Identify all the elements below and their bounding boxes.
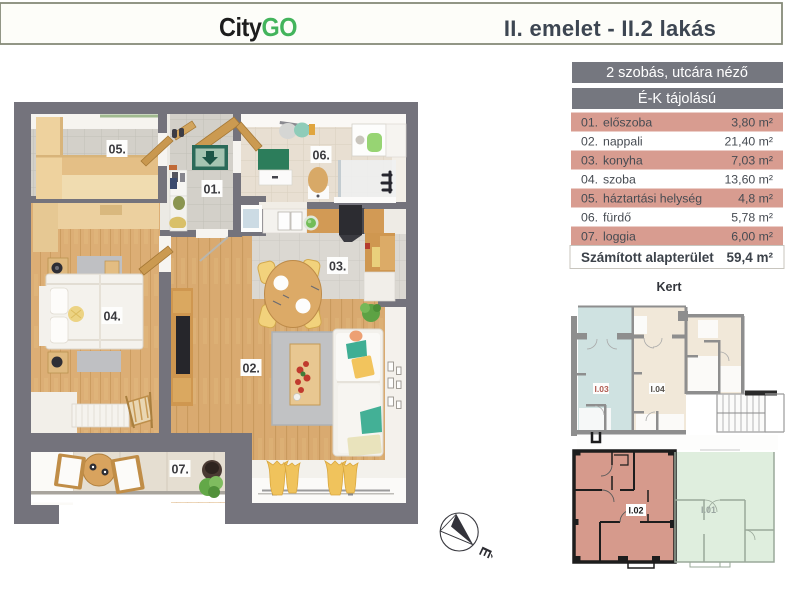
svg-text:04.: 04. <box>581 173 598 187</box>
svg-text:01.: 01. <box>204 183 221 197</box>
svg-text:03.: 03. <box>329 260 346 274</box>
svg-text:loggia: loggia <box>603 230 636 244</box>
svg-text:konyha: konyha <box>603 154 643 168</box>
svg-text:07.: 07. <box>172 463 189 477</box>
svg-text:21,40 m²: 21,40 m² <box>724 135 773 149</box>
svg-text:01.: 01. <box>581 116 598 130</box>
svg-text:Számított alapterület: Számított alapterület <box>581 250 714 265</box>
svg-text:I.04: I.04 <box>651 384 665 394</box>
svg-text:2 szobás, utcára néző: 2 szobás, utcára néző <box>606 65 748 81</box>
svg-text:02.: 02. <box>581 135 598 149</box>
svg-text:I.02: I.02 <box>629 506 644 516</box>
svg-text:05.: 05. <box>109 143 126 157</box>
svg-text:nappali: nappali <box>603 135 643 149</box>
svg-text:I.03: I.03 <box>595 384 609 394</box>
svg-text:előszoba: előszoba <box>603 116 652 130</box>
svg-text:04.: 04. <box>104 310 121 324</box>
svg-text:I.01: I.01 <box>701 505 716 515</box>
svg-text:CityGO: CityGO <box>219 12 297 42</box>
svg-text:02.: 02. <box>243 362 260 376</box>
svg-text:03.: 03. <box>581 154 598 168</box>
svg-text:fürdő: fürdő <box>603 211 631 225</box>
svg-text:szoba: szoba <box>603 173 636 187</box>
svg-text:13,60 m²: 13,60 m² <box>724 173 773 187</box>
svg-text:Kert: Kert <box>656 280 682 294</box>
svg-text:59,4 m²: 59,4 m² <box>726 250 773 265</box>
svg-text:06.: 06. <box>313 149 330 163</box>
svg-text:5,78 m²: 5,78 m² <box>731 211 773 225</box>
svg-text:háztartási helység: háztartási helység <box>603 192 702 206</box>
svg-text:07.: 07. <box>581 230 598 244</box>
svg-text:05.: 05. <box>581 192 598 206</box>
svg-text:4,8 m²: 4,8 m² <box>738 192 773 206</box>
svg-text:06.: 06. <box>581 211 598 225</box>
svg-text:7,03 m²: 7,03 m² <box>731 154 773 168</box>
svg-text:3,80 m²: 3,80 m² <box>731 116 773 130</box>
svg-text:II. emelet - II.2 lakás: II. emelet - II.2 lakás <box>504 16 716 41</box>
svg-text:É-K tájolású: É-K tájolású <box>638 90 716 107</box>
svg-text:6,00 m²: 6,00 m² <box>731 230 773 244</box>
